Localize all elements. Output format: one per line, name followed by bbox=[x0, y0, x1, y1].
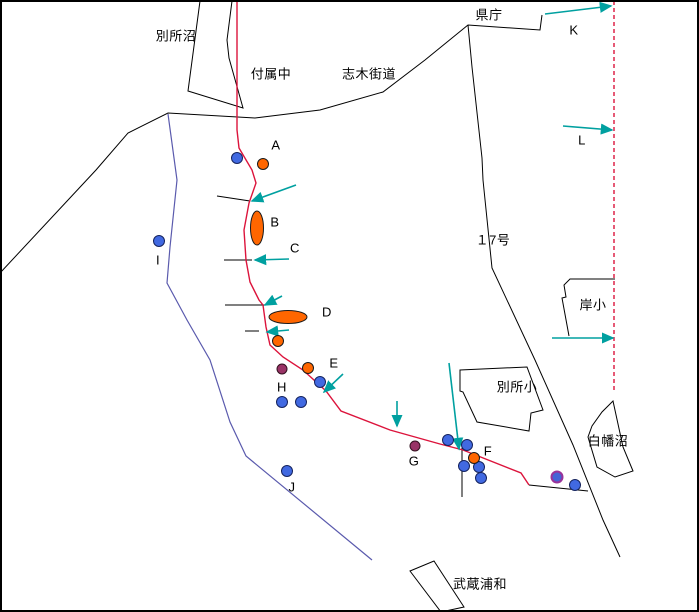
label-point-E: E bbox=[329, 357, 338, 370]
blue-dot bbox=[277, 397, 288, 408]
label-point-L: L bbox=[578, 134, 586, 147]
label-kishi-sho: 岸小 bbox=[579, 299, 606, 312]
orange-dot bbox=[258, 159, 269, 170]
label-point-A: A bbox=[271, 139, 280, 152]
arrow-L bbox=[563, 126, 612, 130]
label-shirahata-numa: 白幡沼 bbox=[588, 435, 629, 448]
arrow-K bbox=[545, 6, 611, 14]
label-bessho-sho: 別所小 bbox=[497, 381, 538, 394]
blue-dot bbox=[462, 440, 473, 451]
purple-dot bbox=[410, 441, 420, 451]
label-route-17: １7号 bbox=[476, 234, 511, 247]
arrow-E bbox=[324, 374, 343, 392]
blue-dot bbox=[282, 466, 293, 477]
stream-line bbox=[167, 114, 372, 560]
blue-dot bbox=[232, 153, 243, 164]
arrow-D bbox=[265, 296, 282, 305]
label-point-K: K bbox=[569, 24, 578, 37]
route17-road-line bbox=[468, 25, 620, 557]
ellipse-D bbox=[269, 311, 307, 324]
purple-dot bbox=[277, 364, 287, 374]
arrow-layer bbox=[252, 6, 613, 449]
label-point-J: J bbox=[289, 481, 296, 494]
label-bessho-numa: 別所沼 bbox=[156, 30, 197, 43]
label-musashi-urawa: 武蔵浦和 bbox=[453, 578, 507, 591]
special-dot bbox=[552, 472, 563, 483]
lake-bessho-numa-outline bbox=[188, 1, 243, 108]
orange-dot bbox=[273, 336, 284, 347]
arrow-route-mid bbox=[267, 330, 289, 332]
blue-dot bbox=[570, 480, 581, 491]
label-fuzoku-chu: 付属中 bbox=[251, 68, 292, 81]
label-kencho: 県庁 bbox=[475, 9, 502, 22]
blue-dot bbox=[154, 236, 165, 247]
label-point-I: I bbox=[156, 254, 160, 267]
orange-dot bbox=[469, 453, 480, 464]
blue-dot bbox=[315, 377, 326, 388]
label-point-B: B bbox=[270, 216, 279, 229]
marker-layer bbox=[154, 153, 581, 491]
map-canvas: 別所沼付属中志木街道県庁１7号岸小別所小白幡沼武蔵浦和ABCDEFGHIJKL bbox=[0, 0, 699, 612]
label-point-F: F bbox=[484, 445, 492, 458]
ellipse-B bbox=[251, 211, 264, 245]
arrow-C bbox=[255, 259, 289, 260]
label-point-G: G bbox=[409, 455, 420, 468]
blue-dot bbox=[443, 435, 454, 446]
blue-dot bbox=[296, 397, 307, 408]
tick-line-1 bbox=[217, 196, 250, 201]
label-point-C: C bbox=[290, 242, 300, 255]
arrow-route-upper bbox=[252, 185, 296, 201]
label-shiki-kaido: 志木街道 bbox=[342, 68, 396, 81]
orange-dot bbox=[303, 363, 314, 374]
label-point-H: H bbox=[277, 381, 287, 394]
blue-dot bbox=[459, 461, 470, 472]
blue-dot bbox=[476, 473, 487, 484]
bessho-school-outline bbox=[460, 367, 543, 431]
label-point-D: D bbox=[322, 306, 332, 319]
